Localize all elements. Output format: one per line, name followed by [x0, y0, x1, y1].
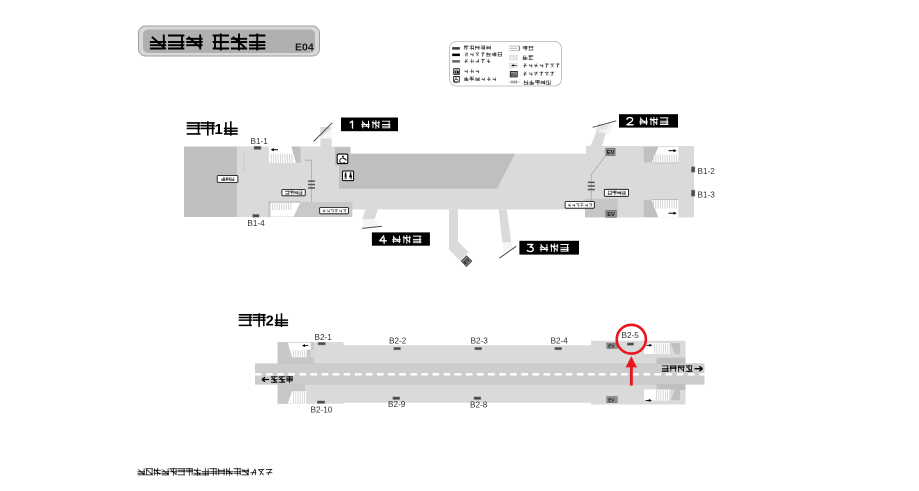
svg-text:B1-2: B1-2: [698, 167, 716, 176]
svg-text:B2-2: B2-2: [389, 337, 407, 346]
svg-text:EV: EV: [511, 73, 516, 77]
svg-text:B1-3: B1-3: [698, 190, 716, 199]
svg-text:B2-10: B2-10: [311, 406, 333, 415]
svg-text:B2-3: B2-3: [471, 337, 489, 346]
svg-text:B2-8: B2-8: [470, 401, 488, 410]
svg-text:B1-4: B1-4: [247, 219, 265, 228]
svg-text:B2-5: B2-5: [622, 331, 640, 340]
svg-text:EV: EV: [607, 212, 615, 218]
svg-text:1: 1: [214, 121, 223, 138]
svg-text:E04: E04: [295, 42, 314, 54]
svg-text:B2-9: B2-9: [388, 400, 406, 409]
svg-text:B2-1: B2-1: [315, 333, 333, 342]
svg-text:EV: EV: [607, 150, 615, 156]
svg-text:EV: EV: [608, 398, 615, 403]
svg-text:2: 2: [266, 313, 274, 329]
svg-text:EV: EV: [608, 344, 615, 349]
svg-text:B2-4: B2-4: [551, 337, 569, 346]
svg-text:B1-1: B1-1: [251, 137, 269, 146]
